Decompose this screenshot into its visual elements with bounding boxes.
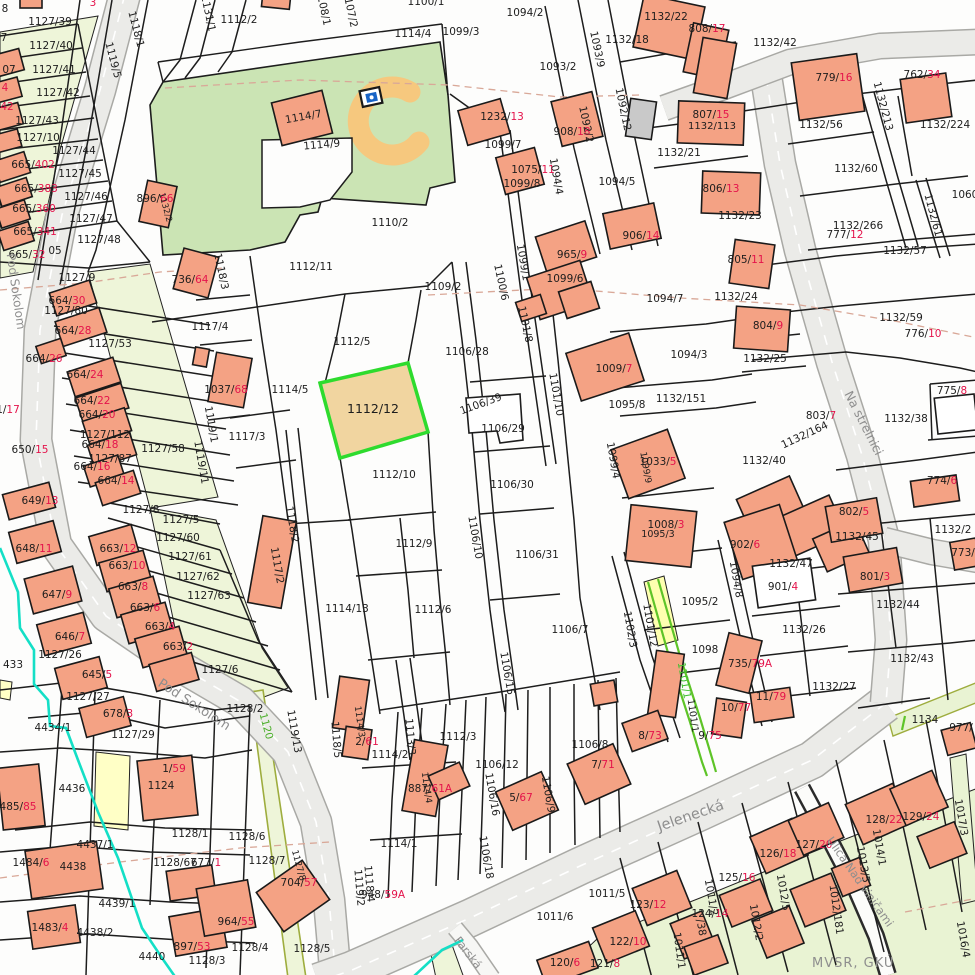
parcel-number-label: 1106/31 bbox=[515, 549, 559, 561]
parcel-number-label: 1106/12 bbox=[475, 759, 519, 771]
parcel-number-label: 1132/43 bbox=[890, 653, 934, 665]
building-number-label: 645/5 bbox=[82, 669, 112, 681]
parcel-number-label: 1094/2 bbox=[507, 7, 544, 19]
building-number-label: 806/13 bbox=[703, 183, 740, 195]
parcel-number-label: 1095/2 bbox=[682, 596, 719, 608]
building-number-label: 663/10 bbox=[109, 560, 146, 572]
building-number-label: 11/79 bbox=[756, 691, 786, 703]
parcel-number-label: 1132/113 bbox=[688, 121, 736, 132]
building-number-label: 121/8 bbox=[590, 958, 620, 970]
parcel-number-label: 1099/7 bbox=[485, 139, 522, 151]
parcel-number-label: 1132/23 bbox=[718, 210, 762, 222]
parcel-number-label: 1112/5 bbox=[334, 336, 371, 348]
parcel-number-label: 1112/6 bbox=[415, 604, 452, 616]
building-number-label: 665/360 bbox=[12, 203, 56, 215]
parcel-number-label: 1114/2 bbox=[372, 749, 409, 761]
building bbox=[208, 352, 252, 407]
building-number-label: 8/73 bbox=[638, 730, 662, 742]
copyright-watermark: MVSR, GKÚ bbox=[812, 956, 894, 971]
building-number-label: 42 bbox=[0, 101, 13, 113]
parcel-number-label: 1127/45 bbox=[58, 168, 102, 180]
building-number-label: 677/1 bbox=[191, 857, 221, 869]
building-footprint bbox=[0, 764, 45, 830]
building bbox=[0, 764, 45, 830]
building-number-label: 805/11 bbox=[728, 254, 765, 266]
building bbox=[20, 0, 42, 8]
building-footprint bbox=[20, 0, 42, 8]
parcel-number-label: 1106/8 bbox=[572, 739, 609, 751]
parcel-number-label: 1132/45 bbox=[835, 531, 879, 543]
parcel-number-label: 1127/47 bbox=[69, 213, 113, 225]
building bbox=[791, 54, 864, 121]
building-number-label: 663/6 bbox=[130, 602, 161, 614]
parcel-number-label: 1095/8 bbox=[609, 399, 646, 411]
building-number-label: 664/26 bbox=[26, 353, 63, 365]
parcel-number-label: 1095/3 bbox=[641, 529, 674, 540]
parcel-number-label: 1128/6 bbox=[229, 831, 266, 843]
building-number-label: 664/28 bbox=[55, 325, 92, 337]
building-number-label: 646/7 bbox=[55, 631, 85, 643]
building-number-label: 775/8 bbox=[937, 385, 967, 397]
building-number-label: 4 bbox=[2, 82, 9, 94]
parcel-number-label: 1114/5 bbox=[272, 384, 309, 396]
parcel-number-label: 1099/6 bbox=[547, 273, 584, 285]
building-number-label: 1232/13 bbox=[480, 111, 524, 123]
parcel-number-label: 1109/2 bbox=[425, 281, 462, 293]
parcel-number-label: 1114/1 bbox=[381, 838, 418, 850]
parcel-number-label: 4439/1 bbox=[99, 898, 136, 910]
building-number-label: 648/11 bbox=[16, 543, 53, 555]
building-number-label: 664/14 bbox=[98, 475, 135, 487]
building-number-label: 663/4 bbox=[145, 621, 176, 633]
parcel-number-label: 07 bbox=[2, 64, 15, 76]
parcel-number-label: 1099/3 bbox=[443, 26, 480, 38]
building-number-label: 1483/4 bbox=[32, 922, 69, 934]
building-footprint bbox=[208, 352, 252, 407]
parcel-number-label: 1132/18 bbox=[605, 34, 649, 46]
parcel-number-label: 1127/48 bbox=[77, 234, 121, 246]
parcel-number-label: 1127/46 bbox=[64, 191, 108, 203]
parcel-number-label: 1127/27 bbox=[66, 691, 110, 703]
parcel-number-label: 1128/4 bbox=[232, 942, 269, 954]
parcel-number-label: 1132/42 bbox=[753, 37, 797, 49]
building-number-label: 122/10 bbox=[610, 936, 647, 948]
building-number-label: 664/20 bbox=[79, 409, 116, 421]
building-number-label: 901/4 bbox=[768, 581, 799, 593]
parcel-number-label: 1093/2 bbox=[540, 61, 577, 73]
parcel-number-label: 1128/2 bbox=[227, 703, 264, 715]
building-footprint bbox=[590, 680, 617, 706]
parcel-number-label: 1099/8 bbox=[504, 178, 541, 190]
parcel-number-label: 1112/9 bbox=[396, 538, 433, 550]
parcel-number-label: 1132/2 bbox=[935, 524, 972, 536]
building-number-label: 902/6 bbox=[730, 539, 761, 551]
building-number-label: 1/59 bbox=[162, 763, 186, 775]
parcel-number-label: 1128/3 bbox=[189, 955, 226, 967]
building bbox=[193, 347, 210, 367]
building-number-label: 126/18 bbox=[760, 848, 797, 860]
parcel-number-label: 1132/224 bbox=[920, 119, 971, 131]
parcel-number-label: 1127/39 bbox=[28, 16, 72, 28]
building-number-label: 664/22 bbox=[74, 395, 111, 407]
building-number-label: 2/61 bbox=[355, 736, 379, 748]
building-number-label: 663/8 bbox=[118, 581, 148, 593]
parcel-number-label: 1124 bbox=[148, 780, 175, 792]
parcel-number-label: 1094/7 bbox=[647, 293, 684, 305]
parcel-number-label: 1127/5 bbox=[163, 514, 200, 526]
building-number-label: 897/53 bbox=[174, 941, 211, 953]
building-number-label: 125/16 bbox=[719, 872, 756, 884]
parcel-number-label: 1060 bbox=[952, 189, 975, 201]
building-footprint bbox=[934, 394, 975, 434]
parcel-number-label: 1127/40 bbox=[29, 40, 73, 52]
building-number-label: 802/5 bbox=[839, 506, 869, 518]
parcel-number-label: 1112/2 bbox=[221, 14, 258, 26]
parcel-number-label: 1117/4 bbox=[192, 321, 229, 333]
parcel-number-label: 1132/59 bbox=[879, 312, 923, 324]
building-number-label: 664/24 bbox=[67, 369, 104, 381]
parcel-number-label: 1127/10 bbox=[16, 132, 60, 144]
parcel-number-label: 1094/3 bbox=[671, 349, 708, 361]
parcel-number-label: 7 bbox=[1, 32, 8, 44]
building-number-label: 678/3 bbox=[103, 708, 133, 720]
parcel-number-label: 1127/41 bbox=[32, 64, 76, 76]
building-number-label: 120/6 bbox=[550, 957, 581, 969]
building-footprint bbox=[193, 347, 210, 367]
building-number-label: 5/67 bbox=[509, 792, 533, 804]
building-number-label: 9/75 bbox=[698, 730, 722, 742]
building-number-label: 777/12 bbox=[827, 229, 864, 241]
building-number-label: 664/16 bbox=[74, 461, 111, 473]
parcel-number-label: 1106/28 bbox=[445, 346, 489, 358]
cadastral-map[interactable]: 870744231127/391127/401127/411127/421127… bbox=[0, 0, 975, 975]
parcel-number-label: 1132/27 bbox=[812, 681, 856, 693]
building-number-label: 804/9 bbox=[753, 320, 783, 332]
building-number-label: 665/402 bbox=[11, 159, 55, 171]
parcel-number-label: 1114/4 bbox=[395, 28, 432, 40]
parcel-number-label: 1127/44 bbox=[52, 145, 96, 157]
building-number-label: 129/24 bbox=[903, 811, 940, 823]
parcel-number-label: 1127/60 bbox=[156, 532, 200, 544]
building-number-label: 735/79A bbox=[728, 658, 773, 670]
parcel-number-label: 1112/11 bbox=[289, 261, 333, 273]
parcel-number-label: 1134 bbox=[912, 714, 939, 726]
parcel-number-label: 1127/53 bbox=[88, 338, 132, 350]
parcel-number-label: 1132/44 bbox=[876, 599, 920, 611]
parcel-number-label: 1127/26 bbox=[38, 649, 82, 661]
parcel-number-label: 1132/21 bbox=[657, 147, 701, 159]
building-number-label: 808/17 bbox=[689, 23, 726, 35]
building-number-label: 647/9 bbox=[42, 589, 72, 601]
parcel-number-label: 1127/8 bbox=[123, 504, 160, 516]
parcel-number-label: 1112/10 bbox=[372, 469, 416, 481]
building-number-label: 906/14 bbox=[623, 230, 660, 242]
parcel-number-label: 1132/60 bbox=[834, 163, 878, 175]
building-number-label: 665/341 bbox=[13, 226, 57, 238]
parcel-number-label: 1098 bbox=[692, 644, 719, 656]
building-footprint bbox=[791, 54, 864, 121]
parcel-number-label: 8 bbox=[2, 3, 9, 15]
parcel-number-label: 1132/47 bbox=[769, 558, 813, 570]
building-number-label: 736/64 bbox=[172, 274, 209, 286]
building-number-label: 485/85 bbox=[0, 801, 36, 813]
building-number-label: 3 bbox=[90, 0, 97, 9]
building-number-label: 801/3 bbox=[860, 571, 890, 583]
parcel-number-label: 1128/1 bbox=[172, 828, 209, 840]
building-number-label: 649/13 bbox=[22, 495, 59, 507]
building-number-label: 10/77 bbox=[721, 702, 751, 714]
parcel-number-label: 1127/43 bbox=[15, 115, 59, 127]
parcel-number-label: 433 bbox=[3, 659, 23, 671]
parcel-number-label: 05 bbox=[48, 245, 61, 257]
parcel-number-label: 1117/3 bbox=[229, 431, 266, 443]
building-number-label: 1037/68 bbox=[204, 384, 248, 396]
parcel-number-label: 1132/56 bbox=[799, 119, 843, 131]
building-number-label: 776/10 bbox=[905, 328, 942, 340]
parcel-number-label: 1112/12 bbox=[347, 401, 399, 416]
building bbox=[934, 394, 975, 434]
building-number-label: 965/9 bbox=[557, 249, 587, 261]
building-number-label: 1/17 bbox=[0, 404, 20, 416]
building-number-label: 128/22 bbox=[866, 814, 903, 826]
parcel-number-label: 977/ bbox=[949, 722, 973, 734]
building-number-label: 665/383 bbox=[14, 183, 58, 195]
building-number-label: 650/15 bbox=[12, 444, 49, 456]
building-number-label: 1484/6 bbox=[13, 857, 50, 869]
parcel-number-label: 1011/6 bbox=[537, 911, 574, 923]
parcel-number-label: 1132/25 bbox=[743, 353, 787, 365]
building-number-label: 663/12 bbox=[100, 543, 137, 555]
parcel-number-label: 1128/5 bbox=[294, 943, 331, 955]
parcel-number-label: 4438/2 bbox=[77, 927, 114, 939]
parcel-number-label: 4438 bbox=[60, 861, 87, 873]
building-number-label: 774/6 bbox=[927, 475, 958, 487]
parcel-number-label: 1127/58 bbox=[141, 443, 185, 455]
parcel-number-label: 1011/5 bbox=[589, 888, 626, 900]
building bbox=[590, 680, 617, 706]
parcel-number-label: 1127/29 bbox=[111, 729, 155, 741]
parcel-number-label: 1106/29 bbox=[481, 423, 525, 435]
building-number-label: 779/16 bbox=[816, 72, 853, 84]
parcel-number-label: 1100/1 bbox=[408, 0, 445, 8]
parcel-number-label: 1132/22 bbox=[644, 11, 688, 23]
parcel-number-label: 1132/57 bbox=[883, 245, 927, 257]
parcel-number-label: 1127/9 bbox=[59, 272, 96, 284]
parcel-number-label: 1128/7 bbox=[249, 855, 286, 867]
parcel-number-label: 1127/62 bbox=[176, 571, 220, 583]
building-number-label: 964/55 bbox=[218, 916, 255, 928]
parcel-number-label: 4437/1 bbox=[77, 839, 114, 851]
parcel-number-label: 1132/26 bbox=[782, 624, 826, 636]
parcel-number-label: 1127/42 bbox=[36, 87, 80, 99]
building-number-label: 807/15 bbox=[693, 109, 730, 121]
parcel-number-label: 1127/80 bbox=[44, 305, 88, 317]
building-number-label: 664/18 bbox=[82, 439, 119, 451]
parcel-number-label: 1106/7 bbox=[552, 624, 589, 636]
building-number-label: 1009/7 bbox=[596, 363, 633, 375]
building-number-label: 663/2 bbox=[163, 641, 193, 653]
parcel-number-label: 773/ bbox=[951, 547, 975, 559]
parcel-number-label: 4440 bbox=[139, 951, 166, 963]
parcel-number-label: 1127/61 bbox=[168, 551, 212, 563]
parcel-number-label: 1132/40 bbox=[742, 455, 786, 467]
parcel-number-label: 1114/13 bbox=[325, 603, 369, 615]
parcel-number-label: 1132/151 bbox=[656, 393, 706, 405]
parcel-number-label: 4436 bbox=[59, 783, 86, 795]
parcel-number-label: 1094/5 bbox=[599, 176, 636, 188]
parcel-number-label: 1132/38 bbox=[884, 413, 928, 425]
map-canvas[interactable]: 870744231127/391127/401127/411127/421127… bbox=[0, 0, 975, 975]
parcel-number-label: 4434/1 bbox=[35, 722, 72, 734]
parcel-number-label: 1110/2 bbox=[372, 217, 409, 229]
parcel-number-label: 1127/6 bbox=[202, 664, 239, 676]
parcel-number-label: 1132/24 bbox=[714, 291, 758, 303]
parcel-number-label: 1106/30 bbox=[490, 479, 534, 491]
building-number-label: 123/12 bbox=[630, 899, 667, 911]
building-number-label: 7/71 bbox=[591, 759, 615, 771]
poi-school-icon[interactable] bbox=[360, 87, 383, 107]
parcel-number-label: 1127/63 bbox=[187, 590, 231, 602]
parcel-number-label: 1112/3 bbox=[440, 731, 477, 743]
building-number-label: 762/34 bbox=[904, 69, 941, 81]
